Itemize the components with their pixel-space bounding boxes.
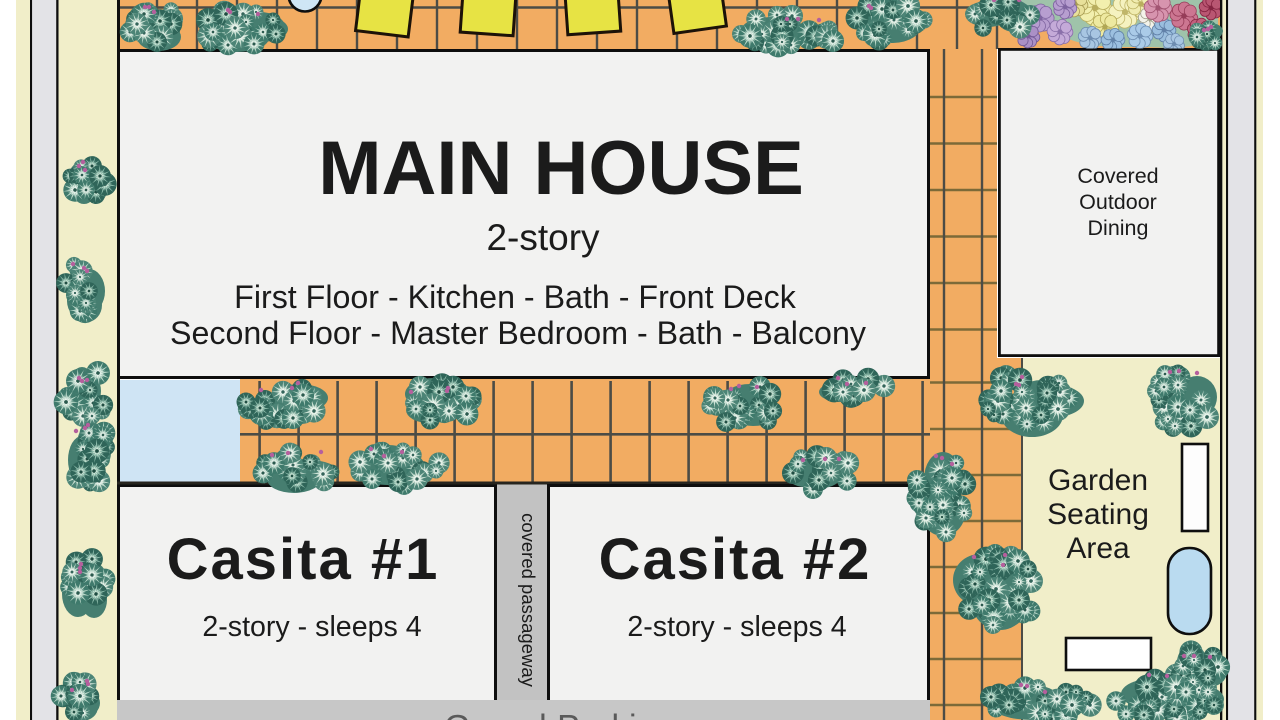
- svg-text:Casita #2: Casita #2: [599, 527, 872, 592]
- svg-text:Seating: Seating: [1047, 498, 1149, 531]
- svg-text:2-story: 2-story: [486, 217, 600, 258]
- svg-text:covered passageway: covered passageway: [518, 513, 539, 688]
- svg-text:Second Floor - Master Bedroom: Second Floor - Master Bedroom - Bath - B…: [170, 315, 867, 351]
- svg-text:MAIN HOUSE: MAIN HOUSE: [318, 126, 804, 211]
- svg-text:2-story - sleeps 4: 2-story - sleeps 4: [202, 611, 421, 643]
- svg-text:First Floor - Kitchen - Bath -: First Floor - Kitchen - Bath - Front Dec…: [234, 279, 797, 315]
- svg-text:Garden: Garden: [1048, 464, 1148, 497]
- svg-text:Covered: Covered: [1077, 164, 1158, 188]
- svg-text:Area: Area: [1066, 532, 1130, 565]
- svg-text:Outdoor: Outdoor: [1079, 190, 1157, 214]
- svg-text:Dining: Dining: [1088, 216, 1149, 240]
- svg-text:2-story - sleeps 4: 2-story - sleeps 4: [627, 611, 846, 643]
- svg-text:Gravel Parking: Gravel Parking: [444, 709, 676, 720]
- svg-text:Casita #1: Casita #1: [167, 527, 440, 592]
